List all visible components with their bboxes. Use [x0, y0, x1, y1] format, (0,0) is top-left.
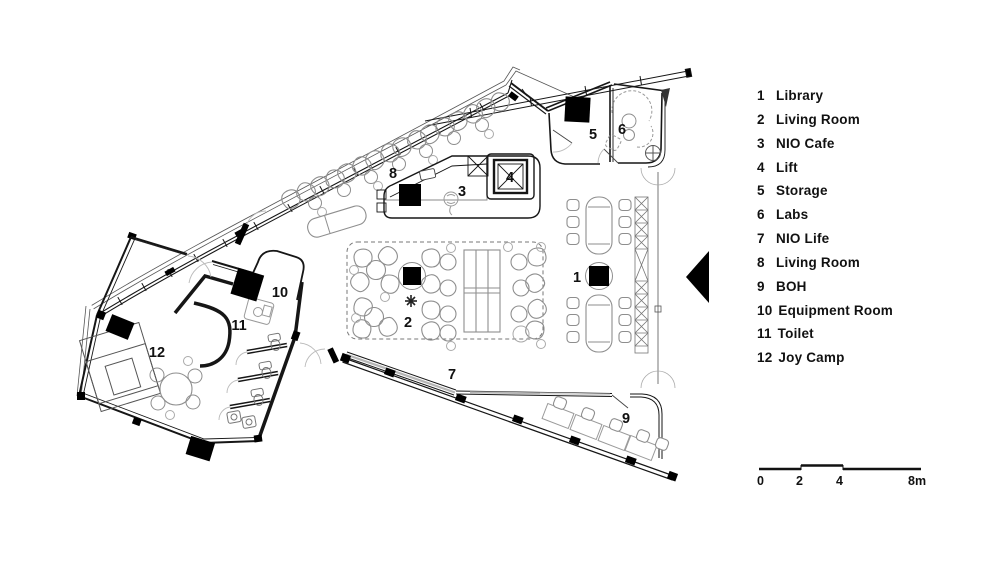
- legend-item-number: 10: [757, 299, 772, 323]
- bookshelf: [635, 197, 648, 353]
- legend-item-label: NIO Cafe: [776, 136, 835, 151]
- joy-camp-furniture: [80, 323, 202, 420]
- legend-item: 1Library: [757, 84, 893, 108]
- boh-desks: [542, 396, 670, 461]
- legend-item: 6Labs: [757, 203, 893, 227]
- storage-cabinet: [564, 96, 590, 122]
- legend-item-label: Equipment Room: [778, 303, 893, 318]
- toilet-stalls: [219, 297, 287, 429]
- legend-item-number: 11: [757, 322, 772, 346]
- legend-item-label: Library: [776, 88, 823, 103]
- legend-item: 10Equipment Room: [757, 299, 893, 323]
- room-number-10: 10: [272, 285, 288, 301]
- legend-item-number: 2: [757, 108, 770, 132]
- legend-item: 2Living Room: [757, 108, 893, 132]
- room-number-1: 1: [573, 270, 581, 286]
- legend-item-label: Toilet: [778, 326, 814, 341]
- legend-item: 4Lift: [757, 156, 893, 180]
- legend-item-label: Lift: [776, 160, 798, 175]
- room-number-5: 5: [589, 127, 597, 143]
- room-number-11: 11: [231, 318, 246, 334]
- room-number-6: 6: [618, 122, 626, 138]
- scale-bar: 0 2 4 8m: [757, 465, 926, 488]
- entry-right-side: [641, 168, 675, 388]
- legend-item-number: 9: [757, 275, 770, 299]
- room-number-4: 4: [506, 170, 514, 186]
- legend-item: 12Joy Camp: [757, 346, 893, 370]
- legend-item: 9BOH: [757, 275, 893, 299]
- legend-item-label: Labs: [776, 207, 808, 222]
- legend-item-number: 1: [757, 84, 770, 108]
- labs-fan-symbol: [646, 146, 661, 161]
- legend-item: 5Storage: [757, 179, 893, 203]
- legend-item-label: Storage: [776, 183, 828, 198]
- room-number-2: 2: [404, 315, 412, 331]
- legend-item-number: 8: [757, 251, 770, 275]
- entrance-arrow-icon: [686, 251, 709, 303]
- legend-item-number: 12: [757, 346, 772, 370]
- legend-item-label: NIO Life: [776, 231, 829, 246]
- legend-item-number: 6: [757, 203, 770, 227]
- roof-bar: [425, 69, 692, 126]
- legend-item-number: 5: [757, 179, 770, 203]
- room-number-3: 3: [458, 184, 466, 200]
- legend-item: 11Toilet: [757, 322, 893, 346]
- left-block-walls: [79, 237, 304, 443]
- scale-tick-8m: 8m: [908, 474, 926, 488]
- scale-tick-2: 2: [796, 474, 803, 488]
- legend-item-number: 4: [757, 156, 770, 180]
- legend-item-label: Joy Camp: [778, 350, 844, 365]
- accessible-wc: [244, 297, 275, 325]
- room-number-9: 9: [622, 411, 630, 427]
- legend-item-label: Living Room: [776, 112, 860, 127]
- scale-tick-4: 4: [836, 474, 843, 488]
- scale-tick-0: 0: [757, 474, 764, 488]
- labs-furniture: [604, 91, 653, 152]
- legend-item-number: 7: [757, 227, 770, 251]
- legend-item: 3NIO Cafe: [757, 132, 893, 156]
- lounge-area: [347, 242, 549, 351]
- legend-item-number: 3: [757, 132, 770, 156]
- legend-item-label: BOH: [776, 279, 807, 294]
- legend-item: 8Living Room: [757, 251, 893, 275]
- room-5-6-doors: [553, 130, 618, 163]
- floor-plan-page: 1 2 3 4 5 6 7 8 9 10 11 12 0 2 4 8m 1Lib…: [0, 0, 1000, 562]
- room-number-7: 7: [448, 367, 456, 383]
- legend-item: 7NIO Life: [757, 227, 893, 251]
- equipment-room-10: [230, 268, 264, 302]
- room-number-12: 12: [149, 345, 165, 361]
- south-exit-doors: [300, 343, 339, 367]
- legend-item-label: Living Room: [776, 255, 860, 270]
- room-number-8: 8: [389, 166, 397, 182]
- nio-life-wall-7: [345, 352, 456, 395]
- legend: 1Library 2Living Room 3NIO Cafe 4Lift 5S…: [757, 84, 893, 370]
